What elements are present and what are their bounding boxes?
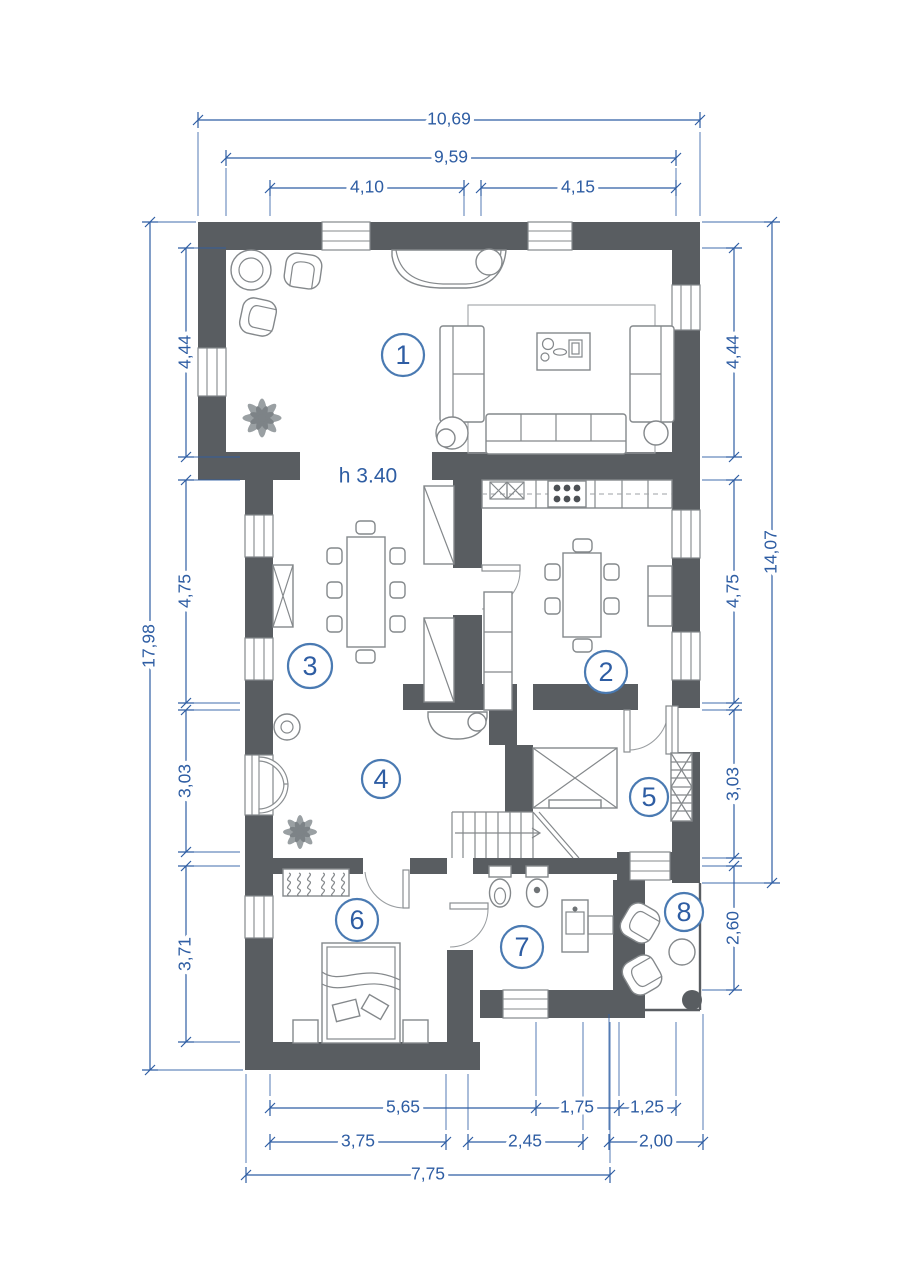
dining-table: [347, 537, 385, 647]
dim-label: 14,07: [761, 530, 781, 574]
radiator-icon: [671, 753, 692, 821]
radiator-icon: [273, 565, 293, 627]
dining-room-furniture: [327, 521, 405, 663]
room-number: 1: [395, 340, 410, 370]
floor-plan-page: 10,69 9,59 4,10 4,15 4,44 4,75 3,03 3,71…: [0, 0, 903, 1280]
dim-label: 2,00: [639, 1131, 673, 1151]
dim-label: 2,60: [723, 911, 743, 945]
round-table-icon: [231, 250, 271, 290]
dim-label: 4,44: [723, 335, 743, 369]
room-badge-6: 6: [336, 899, 378, 941]
dim-label: 4,10: [350, 177, 384, 197]
nightstand: [293, 1020, 318, 1043]
nightstand: [403, 1020, 428, 1043]
window-icon: [322, 222, 370, 250]
dim-label: 4,15: [561, 177, 595, 197]
window-icon: [528, 222, 572, 250]
tall-cupboard-icon: [424, 486, 454, 564]
entrance-double-door: [245, 755, 288, 815]
dim-label: 5,65: [386, 1097, 420, 1117]
dim-label: 2,45: [508, 1131, 542, 1151]
room-number: 3: [302, 651, 317, 681]
window-icon: [503, 990, 548, 1018]
window-icon: [245, 896, 273, 938]
double-bed: [322, 943, 400, 1043]
room-badge-4: 4: [362, 760, 400, 798]
staircase: [452, 812, 579, 858]
room-number: 5: [641, 782, 656, 812]
dim-label: 7,75: [411, 1164, 445, 1184]
piano-console: [392, 249, 506, 288]
room-badge-1: 1: [382, 334, 424, 376]
room-badge-5: 5: [630, 778, 668, 816]
room-number: 8: [676, 897, 691, 927]
dim-label: 4,75: [723, 574, 743, 608]
room-badge-3: 3: [288, 644, 332, 688]
bidet-icon: [526, 866, 548, 907]
dim-label: 3,75: [341, 1131, 375, 1151]
window-icon: [672, 510, 700, 558]
bedroom-door: [365, 870, 409, 908]
bathroom-door: [450, 903, 488, 947]
plant-icon: [242, 398, 281, 437]
kitchen-side-counter: [648, 566, 672, 626]
console-table: [428, 712, 487, 739]
room-badge-8: 8: [665, 893, 703, 931]
kitchen-table: [563, 553, 601, 637]
window-icon: [245, 638, 273, 680]
room-number: 4: [373, 764, 388, 794]
stool-icon: [274, 714, 300, 740]
column-icon: [682, 990, 702, 1010]
room-badge-2: 2: [585, 651, 627, 693]
dim-label: 4,44: [175, 335, 195, 369]
elevator-shaft: [533, 748, 617, 808]
dim-label: 3,03: [723, 767, 743, 801]
dim-label: 3,03: [175, 764, 195, 798]
armchair-icon: [238, 296, 279, 338]
dim-label: 3,71: [175, 937, 195, 971]
window-icon: [245, 515, 273, 557]
room5-door: [624, 706, 678, 754]
coffee-table: [537, 333, 590, 370]
dim-label: 17,98: [139, 624, 159, 668]
dim-label: 4,75: [175, 574, 195, 608]
window-icon: [672, 632, 700, 680]
armchair-icon: [283, 252, 323, 291]
dim-label: 1,25: [630, 1097, 664, 1117]
tall-cupboard-icon: [424, 618, 454, 702]
dim-label: 10,69: [427, 109, 471, 129]
wardrobe: [283, 869, 349, 896]
dim-label: 9,59: [434, 147, 468, 167]
terrace-table-icon: [669, 939, 695, 965]
window-icon: [672, 285, 700, 330]
plant-icon: [283, 815, 317, 849]
toilet-icon: [489, 866, 511, 907]
room-number: 2: [598, 657, 613, 687]
sink-vanity: [562, 900, 613, 952]
room-number: 6: [349, 905, 364, 935]
living-room-furniture: [231, 249, 674, 454]
floor-plan-drawing: 10,69 9,59 4,10 4,15 4,44 4,75 3,03 3,71…: [0, 0, 903, 1280]
dim-label: 1,75: [560, 1097, 594, 1117]
window-icon: [198, 348, 226, 396]
ceiling-height-note: h 3.40: [339, 465, 397, 488]
kitchen-cabinet-column: [484, 592, 512, 710]
window-icon: [630, 852, 670, 880]
stove-icon: [548, 481, 586, 507]
room-number: 7: [514, 932, 529, 962]
room-badge-7: 7: [501, 926, 543, 968]
